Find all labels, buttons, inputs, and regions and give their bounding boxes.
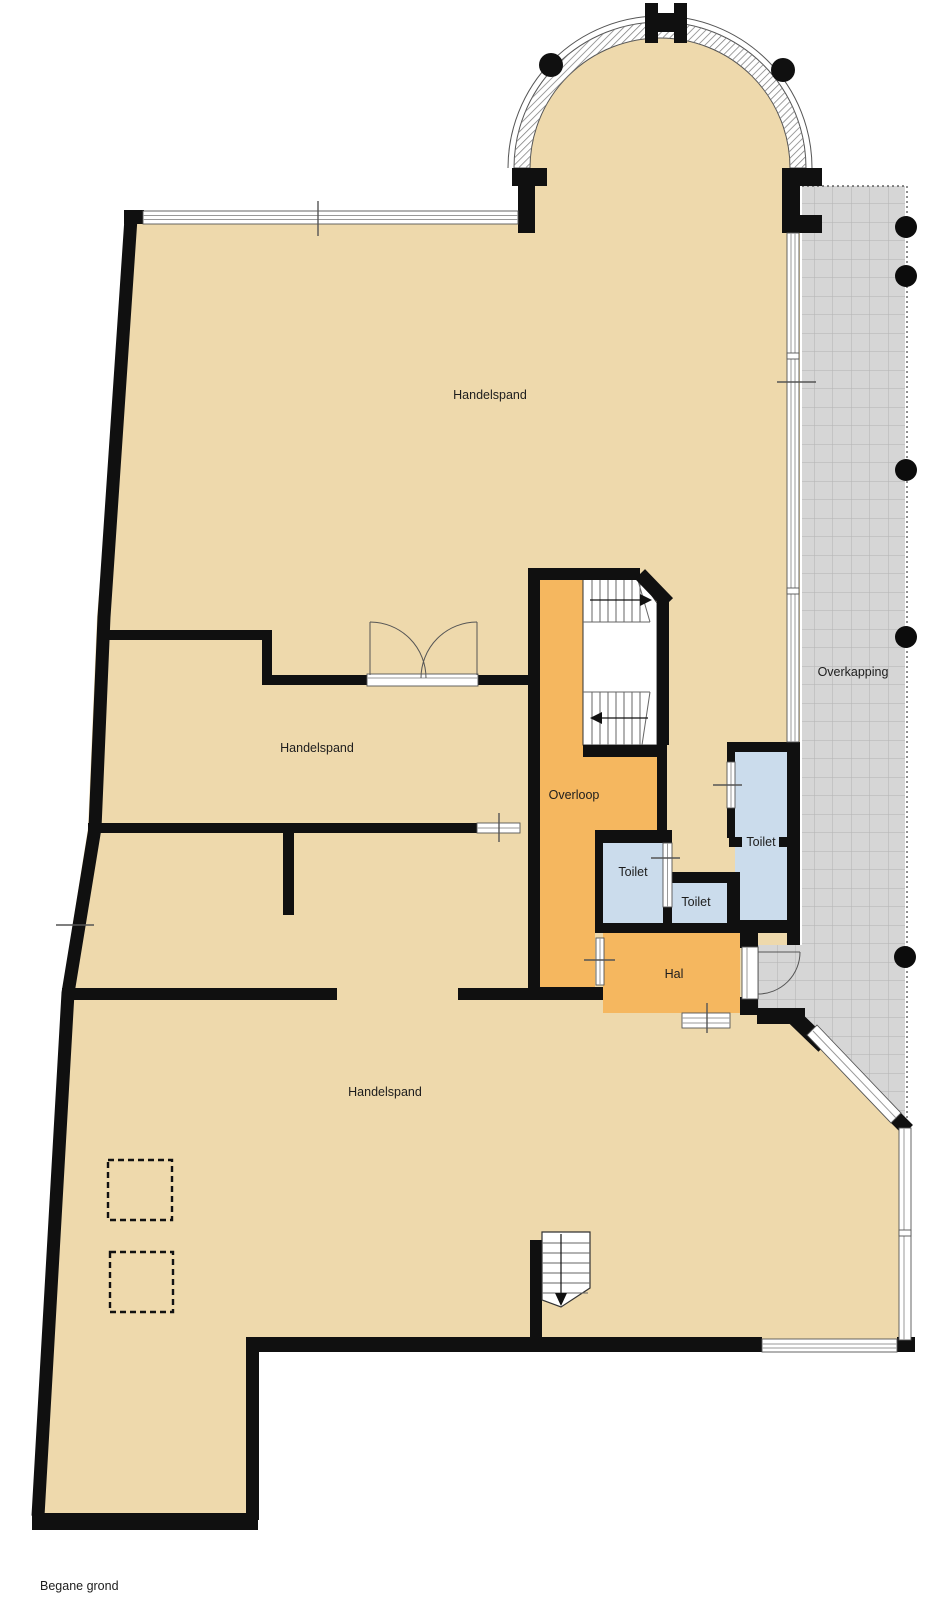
room-label-hal: Hal: [665, 967, 684, 981]
room-label-overloop: Overloop: [549, 788, 600, 802]
floorplan-svg: Handelspand Handelspand Handelspand Over…: [0, 0, 933, 1620]
outer-wall-top-cap: [124, 210, 144, 224]
window-right-lower: [899, 1128, 911, 1340]
window-bottom-right: [762, 1339, 897, 1352]
room-label-overkapping: Overkapping: [818, 665, 889, 679]
window-toilet-left: [663, 843, 672, 907]
floorplan-page: Handelspand Handelspand Handelspand Over…: [0, 0, 933, 1620]
room-label-toilet-right: Toilet: [746, 835, 776, 849]
room-label-handelspand-top: Handelspand: [453, 388, 527, 402]
floor-title: Begane grond: [40, 1579, 119, 1593]
room-label-toilet-left: Toilet: [618, 865, 648, 879]
room-label-handelspand-middle: Handelspand: [280, 741, 354, 755]
window-hal-left: [596, 938, 604, 985]
window-hal-bottom: [682, 1013, 730, 1028]
room-label-handelspand-bottom: Handelspand: [348, 1085, 422, 1099]
stair-main: [583, 577, 657, 745]
window-right: [787, 233, 799, 742]
room-label-toilet-middle: Toilet: [681, 895, 711, 909]
toilet-left-room: [603, 838, 663, 923]
window-top: [143, 211, 518, 224]
